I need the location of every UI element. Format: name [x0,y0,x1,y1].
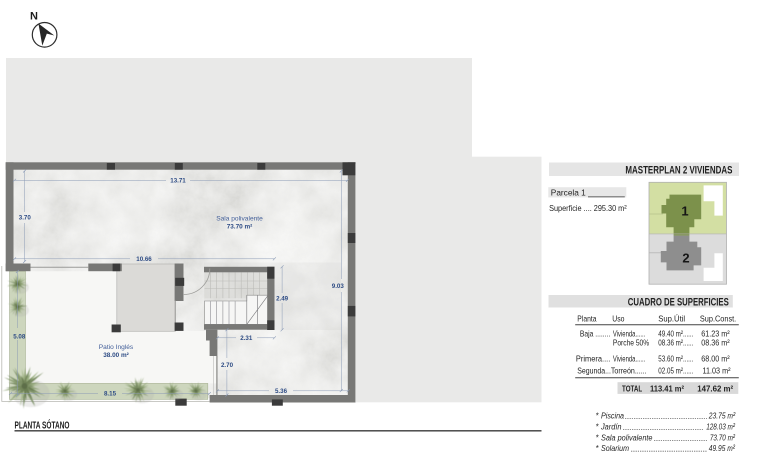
svg-text:Vivienda......: Vivienda...... [613,353,645,363]
svg-text:Baja ........: Baja ........ [580,328,610,338]
svg-text:02.05 m²......: 02.05 m²...... [658,365,693,375]
svg-text:Jardín: Jardín [600,421,622,431]
svg-text:MASTERPLAN 2 VIVIENDAS: MASTERPLAN 2 VIVIENDAS [625,165,732,177]
svg-text:Piscina: Piscina [601,411,624,421]
svg-text:Torreón......: Torreón...... [611,365,647,375]
svg-text:N: N [30,10,38,22]
svg-text:13.71: 13.71 [170,178,186,185]
svg-text:Superficie .... 295.30 m²: Superficie .... 295.30 m² [549,203,627,213]
svg-text:2.49: 2.49 [276,295,289,302]
svg-text:53.60 m²......: 53.60 m²...... [658,353,693,363]
svg-text:Solarium: Solarium [601,443,629,453]
svg-text:49.95 m²: 49.95 m² [709,443,736,453]
svg-text:Uso: Uso [612,314,624,324]
svg-text:11.03 m²: 11.03 m² [703,365,731,375]
svg-text:113.41 m²: 113.41 m² [650,384,684,394]
svg-text:PLANTA SÓTANO: PLANTA SÓTANO [15,418,70,431]
svg-text:68.00 m²: 68.00 m² [701,353,730,363]
svg-text:Primera....: Primera.... [576,353,610,363]
svg-text:Porche 50%: Porche 50% [613,337,650,347]
svg-text:Segunda...: Segunda... [577,365,611,375]
svg-text:128.03 m²: 128.03 m² [706,421,736,431]
svg-text:3.70: 3.70 [19,215,32,222]
svg-text:38.00 m²: 38.00 m² [103,352,129,359]
svg-text:73.70 m²: 73.70 m² [710,433,736,443]
svg-text:147.62 m²: 147.62 m² [697,384,733,394]
svg-text:Sala polivalente: Sala polivalente [216,216,263,223]
svg-text:73.70 m²: 73.70 m² [227,224,253,231]
svg-text:Sup.Const.: Sup.Const. [700,314,736,324]
svg-text:5.36: 5.36 [275,388,288,395]
svg-text:Patio Inglés: Patio Inglés [99,344,134,351]
svg-text:23.75 m²: 23.75 m² [708,411,736,421]
svg-text:CUADRO DE SUPERFICIES: CUADRO DE SUPERFICIES [628,297,729,309]
svg-text:10.66: 10.66 [136,256,152,263]
svg-text:8.15: 8.15 [104,390,117,397]
svg-text:Sup.Útil: Sup.Útil [658,314,685,324]
svg-text:1: 1 [681,204,688,219]
svg-text:5.08: 5.08 [13,333,26,340]
svg-text:08.36 m²: 08.36 m² [701,337,730,347]
svg-text:2.70: 2.70 [221,362,234,369]
svg-text:08.36 m²......: 08.36 m²...... [658,337,693,347]
svg-text:Sala polivalente: Sala polivalente [601,433,653,443]
svg-text:2.31: 2.31 [240,335,253,342]
svg-text:Parcela 1: Parcela 1 [551,188,586,198]
svg-text:9.03: 9.03 [332,283,345,290]
svg-text:TOTAL: TOTAL [622,384,642,394]
svg-text:Planta: Planta [577,314,596,324]
svg-text:2: 2 [682,251,689,266]
